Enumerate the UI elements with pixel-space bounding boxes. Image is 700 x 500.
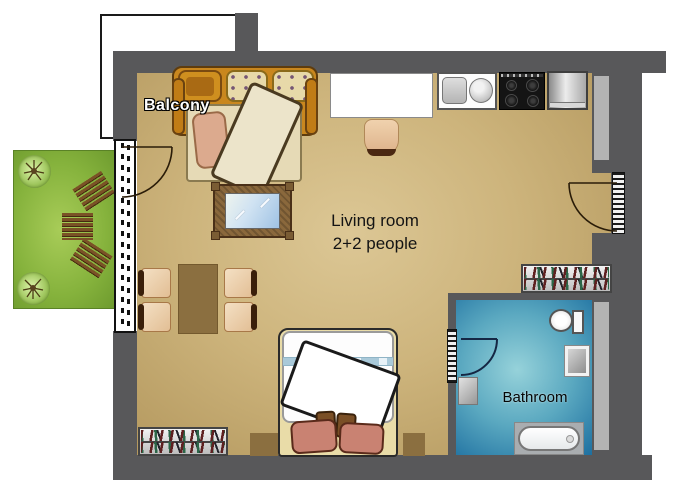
- tv-corner: [285, 231, 294, 240]
- bathroom-sink: [565, 346, 589, 376]
- burner-icon: [527, 95, 539, 107]
- bookshelf: [521, 264, 612, 293]
- living-room-label-line2: 2+2 people: [297, 232, 453, 255]
- floor-plan: Balcony Living room 2+2 people Bathroom: [0, 0, 700, 500]
- tv: [213, 184, 292, 238]
- balcony-label: Balcony: [144, 97, 230, 115]
- entrance-door-leaf: [612, 172, 625, 234]
- dining-table: [178, 264, 218, 334]
- bathroom-door-leaf: [447, 329, 457, 383]
- window: [114, 139, 136, 333]
- bookshelf-row: [524, 279, 609, 290]
- toilet-tank: [572, 310, 584, 334]
- tree-branches-icon: [17, 272, 50, 305]
- tv-corner: [211, 182, 220, 191]
- wall-right: [611, 73, 642, 455]
- refrigerator: [547, 71, 588, 110]
- nightstand: [403, 433, 425, 456]
- burner-icon: [506, 80, 517, 91]
- wall-shaft-top: [594, 76, 609, 160]
- bathroom-wall-top: [448, 293, 611, 300]
- toilet-bowl: [549, 309, 573, 332]
- garden-bench: [72, 171, 115, 212]
- wall-segment: [235, 13, 258, 53]
- dining-chair: [141, 268, 171, 298]
- tree-icon: [18, 155, 51, 188]
- tree-branches-icon: [18, 155, 51, 188]
- tv-screen: [225, 193, 280, 229]
- stove: [499, 72, 545, 110]
- living-room-label-line1: Living room: [297, 209, 453, 232]
- tv-corner: [211, 231, 220, 240]
- burner-icon: [505, 94, 518, 107]
- sofa-cushion-panel: [186, 77, 214, 96]
- bathtub: [518, 426, 580, 451]
- window-dash-line: [121, 143, 124, 329]
- wall-left-upper: [113, 51, 137, 141]
- kitchen-sink-counter: [437, 72, 497, 110]
- tv-corner: [285, 182, 294, 191]
- window-dash-line: [127, 145, 130, 329]
- washing-machine: [458, 377, 478, 405]
- dining-chair: [224, 302, 254, 332]
- garden-table: [62, 213, 93, 240]
- dining-chair: [224, 268, 254, 298]
- nightstand: [250, 433, 278, 456]
- sofa-armrest: [305, 78, 318, 135]
- living-room-label: Living room 2+2 people: [297, 209, 453, 255]
- sink-basin-left: [442, 77, 467, 104]
- bed-pillow: [290, 418, 338, 454]
- bed-pillow: [338, 422, 385, 455]
- sink-basin-right: [469, 78, 493, 103]
- bathtub-surround: [514, 422, 584, 455]
- bookshelf: [138, 427, 228, 456]
- garden-bench: [69, 238, 112, 279]
- bookshelf-row: [141, 442, 225, 453]
- garden-area: [13, 150, 117, 309]
- wall-bottom: [113, 455, 652, 480]
- desk-chair: [364, 119, 399, 156]
- dining-chair: [141, 302, 171, 332]
- bathroom-label: Bathroom: [478, 389, 592, 406]
- desk: [330, 73, 433, 118]
- wall-shaft-bottom: [594, 302, 609, 450]
- tree-icon: [17, 272, 50, 305]
- burner-icon: [526, 79, 539, 92]
